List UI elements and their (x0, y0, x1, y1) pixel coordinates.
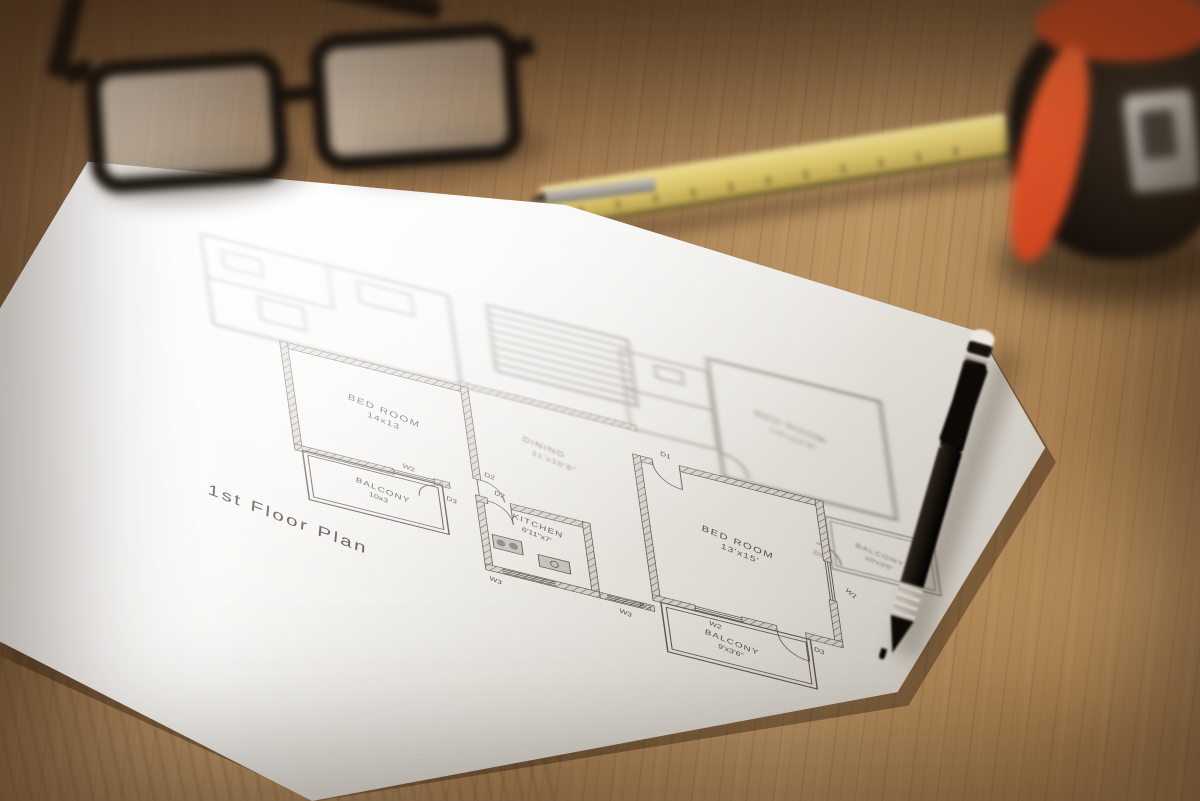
glasses-right-lens (307, 21, 524, 173)
glasses-temple-top (317, 0, 443, 21)
eyeglasses (0, 0, 1200, 801)
photo-canvas: BED ROOM 13'x13'8" DINING 11'x10'6" BALC… (0, 0, 1200, 801)
pen-tip (878, 648, 887, 660)
glasses-left-lens (84, 49, 291, 194)
